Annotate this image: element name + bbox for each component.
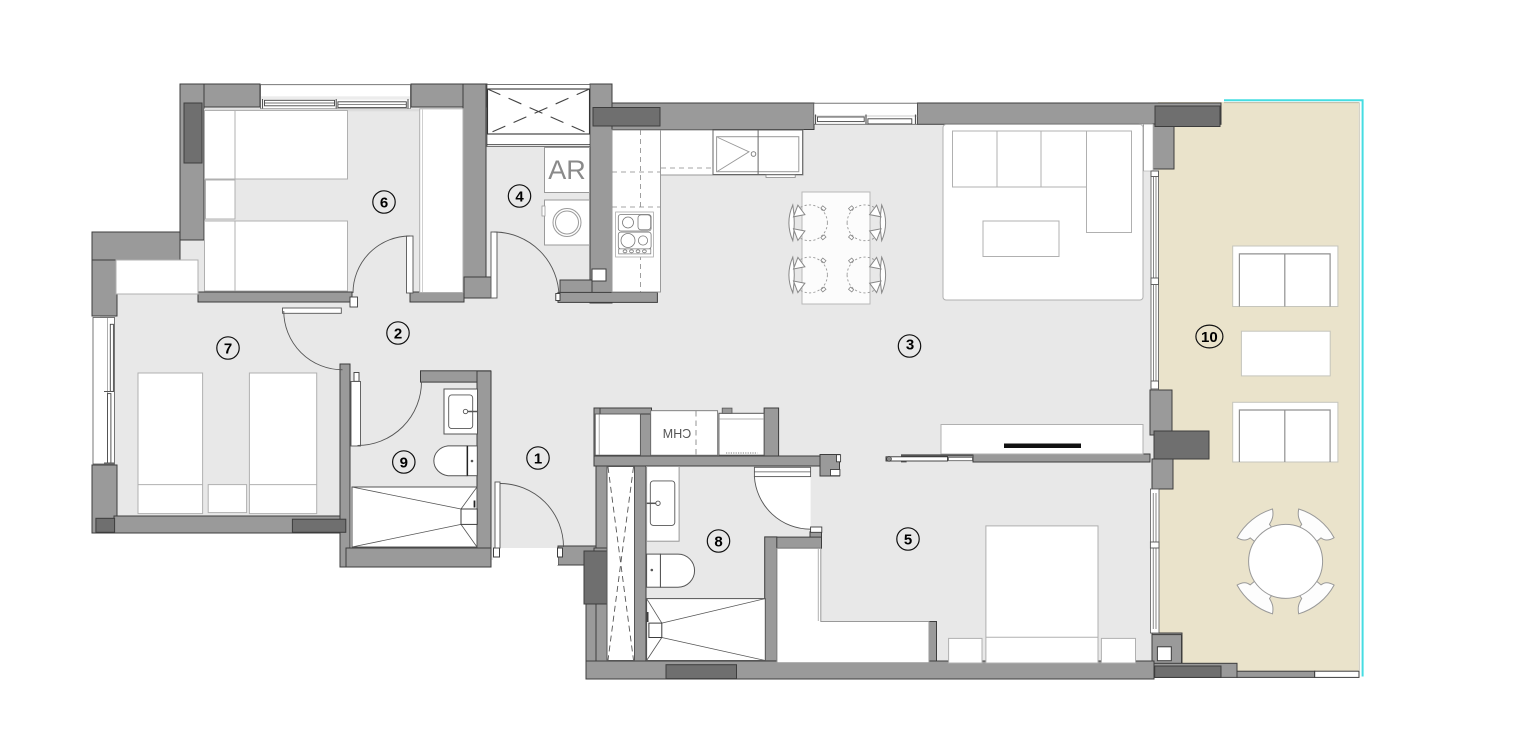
svg-text:4: 4 xyxy=(515,188,524,205)
svg-text:2: 2 xyxy=(394,325,402,342)
svg-text:5: 5 xyxy=(904,531,912,548)
svg-text:10: 10 xyxy=(1201,329,1218,346)
svg-text:8: 8 xyxy=(714,533,722,550)
svg-text:6: 6 xyxy=(380,194,388,211)
svg-text:CHM: CHM xyxy=(663,427,691,441)
svg-text:3: 3 xyxy=(906,337,914,354)
svg-text:1: 1 xyxy=(534,450,542,467)
svg-text:7: 7 xyxy=(224,340,232,357)
svg-text:9: 9 xyxy=(400,454,408,471)
svg-text:AR: AR xyxy=(548,155,586,185)
